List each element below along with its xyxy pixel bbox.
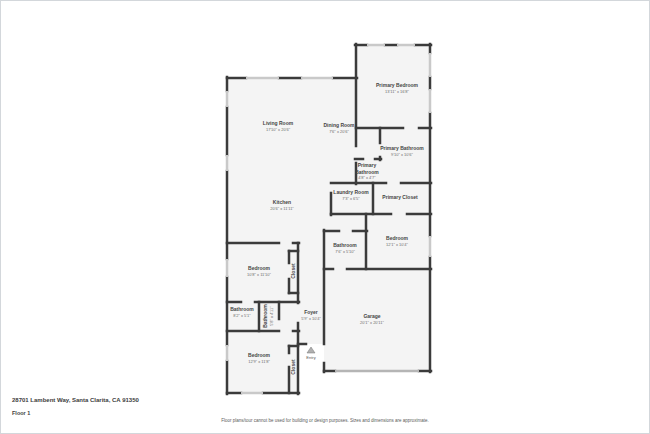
address-text: 28701 Lambent Way, Santa Clarita, CA 913…	[12, 397, 139, 403]
floor-plan	[1, 1, 649, 433]
entry-arrow-icon	[307, 347, 315, 353]
room-label-entry: Entry	[306, 355, 315, 360]
floor-plan-page: Living Room 17'10" x 20'6" Dining Room 7…	[0, 0, 650, 434]
room-fills	[227, 45, 430, 393]
floor-label: Floor 1	[12, 410, 30, 416]
disclaimer-text: Floor plans/tour cannot be used for buil…	[1, 418, 649, 423]
